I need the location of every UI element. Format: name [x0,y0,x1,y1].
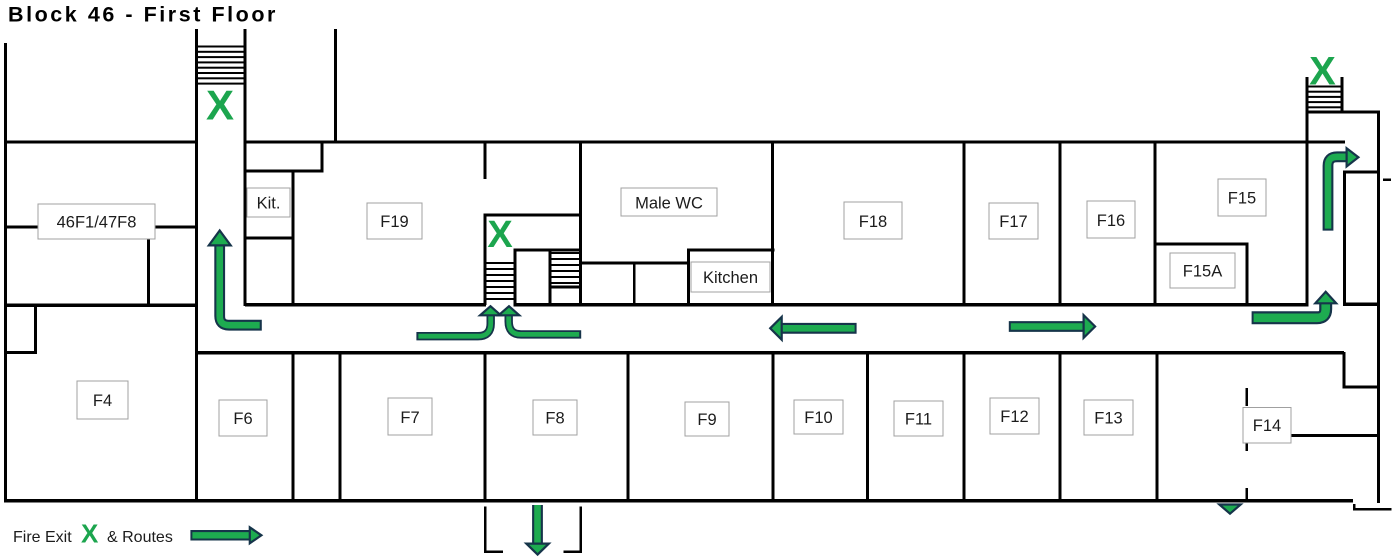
svg-text:F16: F16 [1097,212,1125,230]
svg-text:F6: F6 [233,410,252,428]
svg-text:F19: F19 [380,213,408,231]
svg-text:X: X [487,214,513,256]
svg-text:F15: F15 [1228,190,1256,208]
svg-text:F13: F13 [1094,410,1122,428]
svg-text:F7: F7 [400,409,419,427]
svg-text:Kitchen: Kitchen [703,269,758,287]
svg-text:Fire Exit: Fire Exit [13,529,72,546]
svg-text:46F1/47F8: 46F1/47F8 [57,214,137,232]
svg-text:Block 46 - First Floor: Block 46 - First Floor [8,2,278,26]
svg-text:F12: F12 [1000,408,1028,426]
svg-text:X: X [1309,50,1336,94]
svg-text:F11: F11 [905,411,932,429]
svg-text:& Routes: & Routes [107,529,173,546]
svg-text:F15A: F15A [1183,263,1222,281]
svg-text:F8: F8 [545,410,564,428]
svg-text:F18: F18 [859,213,887,231]
svg-text:X: X [81,519,99,549]
svg-text:F9: F9 [697,411,716,429]
svg-text:X: X [206,82,234,129]
svg-text:Kit.: Kit. [257,195,281,213]
svg-text:F14: F14 [1253,417,1281,435]
svg-text:Male WC: Male WC [635,195,703,213]
svg-text:F10: F10 [804,409,832,427]
svg-text:F4: F4 [93,392,112,410]
svg-text:F17: F17 [999,213,1027,231]
